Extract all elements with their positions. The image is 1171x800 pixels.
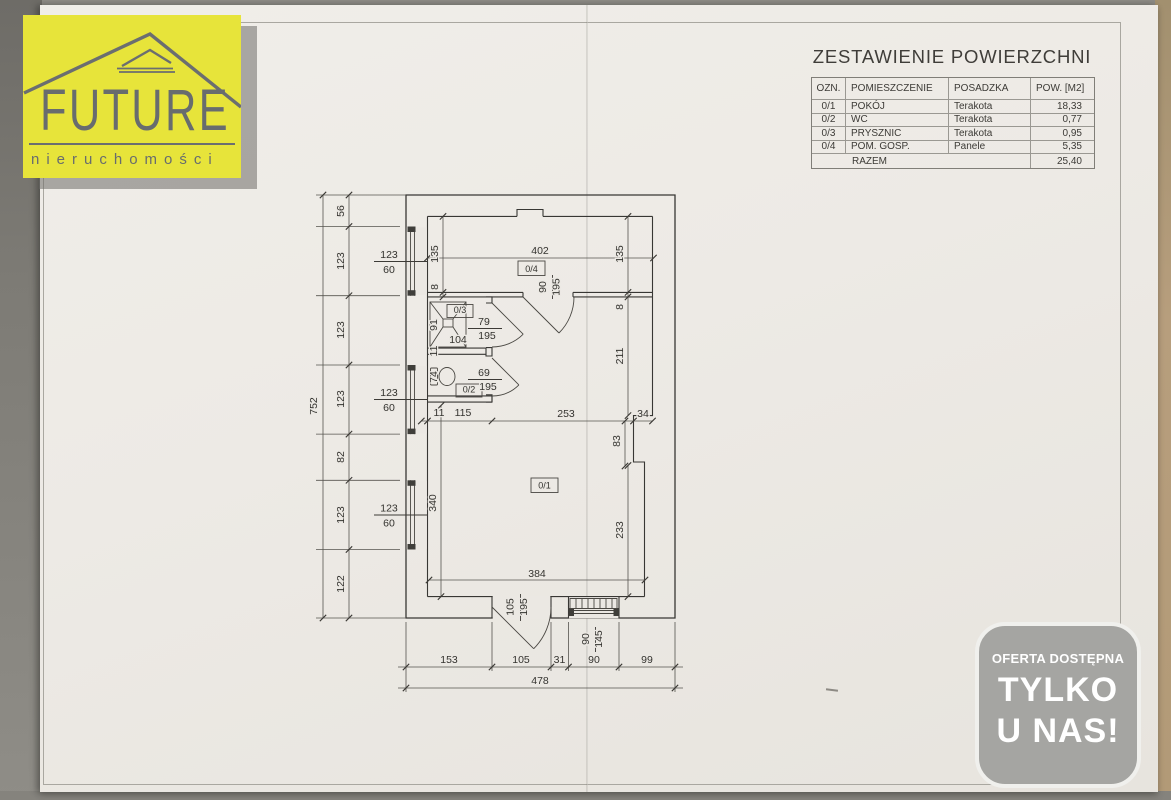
brand-subtitle: nieruchomości [31, 151, 241, 168]
dimension-label: 56 [335, 205, 347, 217]
dimension-label: 11 [434, 407, 445, 419]
table-cell: PRYSZNIC [846, 127, 949, 141]
dimension-label: 74 [428, 371, 440, 383]
dimension-label: 91 [428, 319, 440, 331]
dimension-label: 253 [557, 408, 575, 420]
table-cell: WC [846, 114, 949, 128]
table-cell: Terakota [949, 127, 1031, 141]
areas-table: OZN. POMIESZCZENIE POSADZKA POW. [M2] 0/… [811, 77, 1095, 169]
dimension-label: 60 [383, 518, 395, 530]
dimension-label: 211 [614, 347, 626, 364]
dimension-label: 123 [380, 387, 398, 399]
table-cell: Panele [949, 141, 1031, 155]
dimension-label: 195 [478, 330, 496, 342]
badge-line1: OFERTA DOSTĘPNA [992, 651, 1124, 666]
dimension-label: 90 [537, 281, 549, 293]
table-cell: Terakota [949, 100, 1031, 114]
dimension-label: 69 [478, 367, 490, 379]
dimension-label: 135 [429, 245, 441, 263]
dimension-label: 115 [455, 407, 472, 419]
dimension-label: 82 [335, 451, 347, 463]
table-cell: 0/1 [812, 100, 846, 114]
dimension-label: 104 [449, 334, 467, 346]
col-header-floor: POSADZKA [949, 78, 1031, 100]
exterior-walls [406, 195, 675, 618]
dimension-label: 60 [383, 402, 395, 414]
total-value: 25,40 [1031, 154, 1094, 168]
room-tag-label: 0/2 [463, 385, 476, 395]
dimension-label: 122 [335, 575, 347, 593]
dimension-label: 8 [429, 284, 441, 290]
dimension-label: 233 [614, 521, 626, 539]
dimension-label: 195 [551, 278, 563, 296]
dimension-label: 83 [611, 435, 623, 447]
table-cell: 0,95 [1031, 127, 1094, 141]
photographed-floor-plan-page: 0/40/30/20/1 752561231231238212312212360… [0, 0, 1171, 800]
table-cell: 0/4 [812, 141, 846, 155]
dimension-label: 99 [641, 654, 653, 666]
table-cell: Terakota [949, 114, 1031, 128]
floor-plan: 0/40/30/20/1 752561231231238212312212360… [300, 180, 700, 705]
bottom-window [569, 597, 620, 618]
room-tag-label: 0/3 [454, 305, 467, 315]
brand-name: FUTURE [40, 77, 230, 144]
dimension-label: 195 [518, 598, 530, 616]
dimension-label: 145 [593, 630, 605, 648]
badge-line3: U NAS! [996, 712, 1119, 751]
left-windows [407, 227, 427, 550]
table-cell: 0,77 [1031, 114, 1094, 128]
col-header-ozn: OZN. [812, 78, 846, 100]
col-header-room: POMIESZCZENIE [846, 78, 949, 100]
dimension-label: 34 [637, 408, 649, 420]
dimension-label: 90 [580, 633, 592, 645]
dimension-label: 478 [531, 675, 549, 687]
dimension-label: 8 [614, 304, 626, 310]
dimension-label: 79 [478, 316, 490, 328]
badge-line2: TYLKO [998, 671, 1118, 710]
dimension-label: 123 [335, 506, 347, 524]
dimension-label: 135 [614, 245, 626, 263]
dimension-label: 384 [528, 568, 546, 580]
exclusive-offer-badge: OFERTA DOSTĘPNA TYLKO U NAS! [975, 622, 1141, 788]
agency-logo: FUTURE nieruchomości [23, 15, 241, 178]
room-tag-label: 0/1 [538, 481, 551, 491]
table-cell: 0/2 [812, 114, 846, 128]
dimension-label: 123 [335, 321, 347, 339]
dimension-label: 340 [427, 494, 439, 512]
dimension-label: 90 [588, 654, 600, 666]
dimension-label: 60 [383, 264, 395, 276]
dimension-label: 105 [505, 598, 517, 616]
dimension-label: 11 [428, 345, 440, 356]
table-cell: 18,33 [1031, 100, 1094, 114]
photo-background-bottom [0, 791, 1171, 800]
dimension-label: 123 [380, 503, 398, 515]
col-header-area: POW. [M2] [1031, 78, 1094, 100]
areas-table-title: ZESTAWIENIE POWIERZCHNI [811, 46, 1093, 68]
table-cell: 0/3 [812, 127, 846, 141]
dimension-label: 153 [440, 654, 458, 666]
room-tag-label: 0/4 [525, 264, 538, 274]
dimension-label: 123 [380, 249, 398, 261]
dimension-label: 123 [335, 252, 347, 270]
interior-doors [492, 297, 574, 396]
dimension-label: 123 [335, 390, 347, 408]
dimension-label: 752 [308, 397, 320, 415]
dimension-label: 105 [512, 654, 530, 666]
dimension-label: 402 [531, 245, 549, 257]
room-tags: 0/40/30/20/1 [447, 261, 558, 493]
dimension-label: 31 [554, 654, 566, 666]
table-cell: POM. GOSP. [846, 141, 949, 155]
table-cell: 5,35 [1031, 141, 1094, 155]
total-label: RAZEM [812, 154, 1031, 168]
table-cell: POKÓJ [846, 100, 949, 114]
dimension-label: 195 [479, 381, 497, 393]
logo-divider [29, 143, 235, 145]
